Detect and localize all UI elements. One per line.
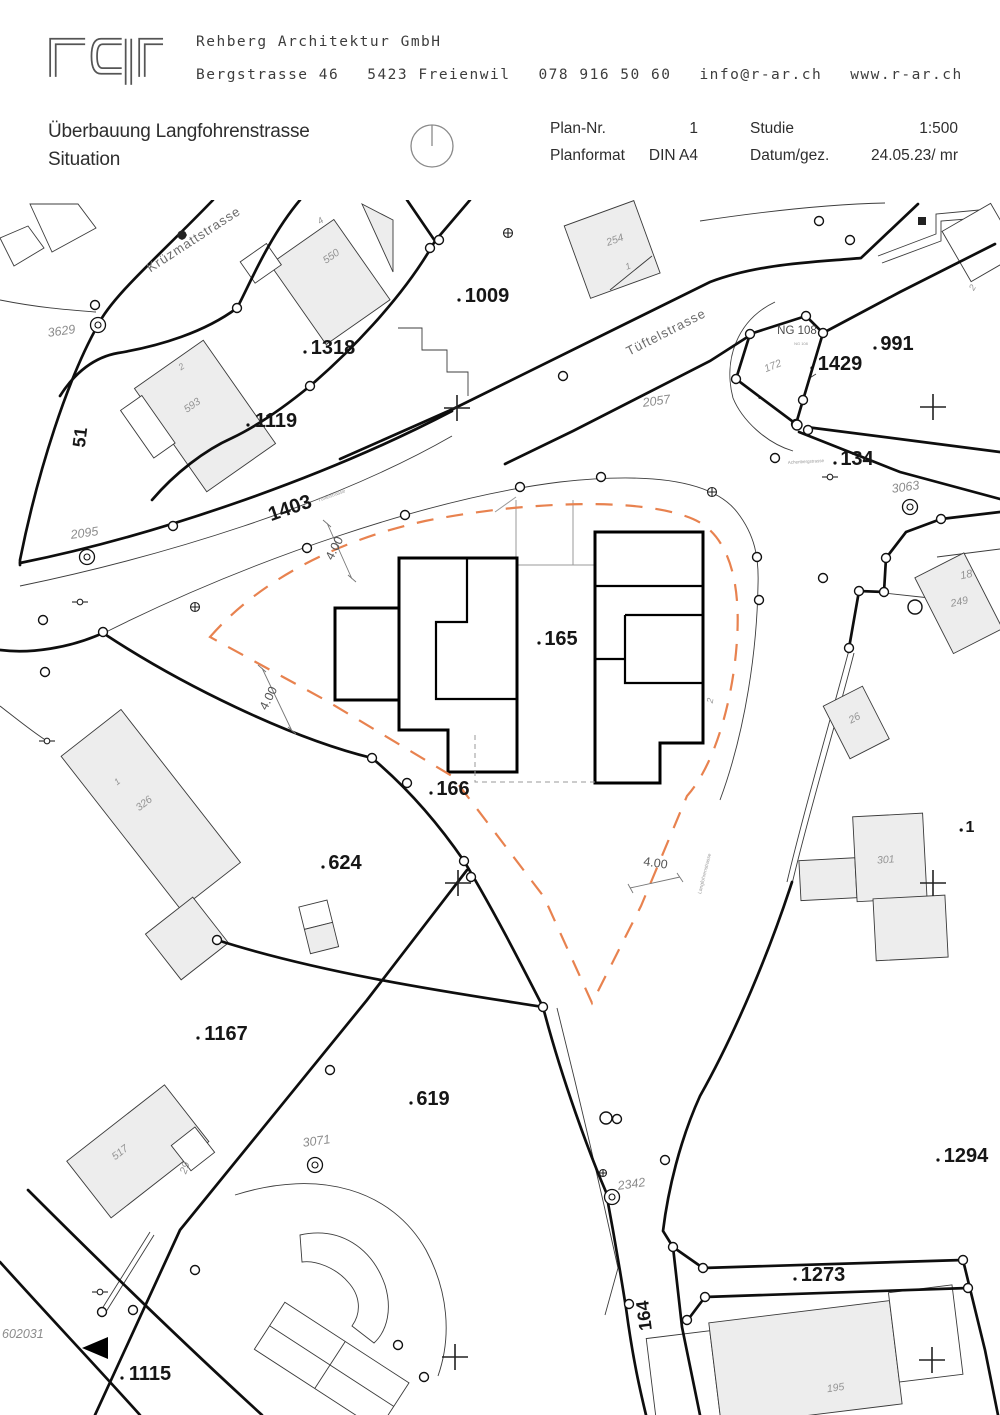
map-label-2057: 2057 xyxy=(641,392,673,410)
map-label-1115: 1115 xyxy=(129,1363,171,1385)
map-label-t-ftelstrasse: Tüftelstrasse xyxy=(317,488,346,504)
map-label-2: 2 xyxy=(705,697,716,705)
parcel-centroid-dot xyxy=(321,865,324,868)
building-tip xyxy=(362,204,393,272)
map-label-602031: 602031 xyxy=(2,1327,44,1341)
field-datum-label: Datum/gez. xyxy=(750,147,829,174)
map-label-301: 301 xyxy=(877,853,895,866)
fixed-point xyxy=(605,1190,620,1205)
map-label-1429: 1429 xyxy=(818,353,863,375)
building-301 xyxy=(797,812,948,964)
company-phone: 078 916 50 60 xyxy=(538,67,671,83)
parcel-centroid-dot xyxy=(537,641,540,644)
company-city: 5423 Freienwil xyxy=(367,67,510,83)
existing-buildings xyxy=(27,201,1000,1415)
new-buildings xyxy=(335,532,703,783)
sheet-name: Situation xyxy=(48,146,310,174)
project-name: Überbauung Langfohrenstrasse xyxy=(48,118,310,146)
map-label-2342: 2342 xyxy=(616,1175,647,1193)
map-label-134: 134 xyxy=(840,448,874,470)
map-label-3063: 3063 xyxy=(891,478,921,496)
fixed-point xyxy=(80,550,95,565)
company-email: info@r-ar.ch xyxy=(699,67,822,83)
company-name: Rehberg Architektur GmbH xyxy=(196,34,442,50)
map-label-1009: 1009 xyxy=(465,285,510,307)
field-planformat-label: Planformat xyxy=(550,147,625,174)
parcel-centroid-dot xyxy=(810,366,813,369)
parcel-centroid-dot xyxy=(196,1036,199,1039)
site-plan-map: KrüzmattstrasseTüftelstrasseTüftelstrass… xyxy=(0,0,1000,1415)
map-label-3629: 3629 xyxy=(47,322,77,340)
projection-lines xyxy=(495,497,595,565)
fixed-point xyxy=(903,500,918,515)
building-326 xyxy=(27,710,275,980)
map-label-166: 166 xyxy=(436,778,469,800)
field-planformat-value: DIN A4 xyxy=(649,147,698,174)
building-593 xyxy=(115,340,276,505)
company-logo xyxy=(40,26,170,88)
map-label-1: 1 xyxy=(966,819,975,836)
building-517 xyxy=(67,1085,216,1228)
map-label-4-00: 4.00 xyxy=(643,854,669,871)
building-bottom-left xyxy=(254,1302,409,1415)
company-street: Bergstrasse 46 xyxy=(196,67,339,83)
parcel-centroid-dot xyxy=(960,828,963,831)
map-label-51: 51 xyxy=(69,426,91,448)
plan-header: rar Rehberg Architektur GmbH Bergstrasse… xyxy=(0,0,1000,200)
map-label-2095: 2095 xyxy=(69,524,100,542)
map-label-165: 165 xyxy=(544,628,577,650)
title-block: Überbauung Langfohrenstrasse Situation xyxy=(48,118,310,174)
building-top-right xyxy=(942,203,1000,281)
company-website: www.r-ar.ch xyxy=(850,67,963,83)
parcel-centroid-dot xyxy=(409,1101,412,1104)
plan-fields-right: Studie 1:500 Datum/gez. 24.05.23/ mr xyxy=(750,120,958,174)
map-label-3071: 3071 xyxy=(302,1132,331,1150)
building-195 xyxy=(644,1285,965,1415)
fixed-point xyxy=(91,318,106,333)
map-label-1403: 1403 xyxy=(265,491,314,526)
map-label-1294: 1294 xyxy=(944,1145,989,1167)
building-254 xyxy=(564,201,660,299)
parcel-centroid-dot xyxy=(429,791,432,794)
shed-624 xyxy=(299,900,339,954)
parcel-centroid-dot xyxy=(457,298,460,301)
company-contact: Bergstrasse 46 5423 Freienwil 078 916 50… xyxy=(196,67,963,83)
map-label-624: 624 xyxy=(328,852,362,874)
field-studie-value: 1:500 xyxy=(919,120,958,147)
field-datum-value: 24.05.23/ mr xyxy=(871,147,958,174)
map-label-1167: 1167 xyxy=(204,1023,247,1045)
map-label-2: 2 xyxy=(966,283,978,293)
field-plan-nr-value: 1 xyxy=(689,120,698,147)
map-label-1273: 1273 xyxy=(801,1264,846,1286)
map-label-achenbergstrasse: Achenbergstrasse xyxy=(788,458,825,465)
parcel-centroid-dot xyxy=(303,350,306,353)
map-label-1119: 1119 xyxy=(255,410,297,432)
wall-post xyxy=(918,217,926,225)
new-building-west xyxy=(399,558,517,772)
field-studie-label: Studie xyxy=(750,120,794,147)
fixed-point xyxy=(308,1158,323,1173)
parcel-centroid-dot xyxy=(793,1277,796,1280)
map-label-619: 619 xyxy=(416,1088,449,1110)
map-label-4: 4 xyxy=(315,215,325,226)
map-label-1318: 1318 xyxy=(311,337,356,359)
map-label-t-ftelstrasse: Tüftelstrasse xyxy=(624,305,709,358)
new-building-east xyxy=(595,532,703,783)
plan-fields-left: Plan-Nr. 1 Planformat DIN A4 xyxy=(550,120,698,174)
parcel-centroid-dot xyxy=(833,461,836,464)
field-plan-nr-label: Plan-Nr. xyxy=(550,120,606,147)
map-label-kr-zmattstrasse: Krüzmattstrasse xyxy=(144,203,244,275)
parcel-centroid-dot xyxy=(873,346,876,349)
map-label-langfohrenstrasse: Langfohrenstrasse xyxy=(697,853,713,895)
map-label-991: 991 xyxy=(880,333,913,355)
map-label-ng-108: NG 108 xyxy=(777,325,817,337)
parcel-centroid-dot xyxy=(936,1158,939,1161)
map-label-195: 195 xyxy=(826,1381,845,1395)
parcel-centroid-dot xyxy=(120,1376,123,1379)
north-arrow-icon xyxy=(408,122,456,170)
parcel-centroid-dot xyxy=(246,423,249,426)
building-550 xyxy=(240,204,390,358)
new-building-west-annex xyxy=(335,608,399,700)
map-label-ng-108: NG 108 xyxy=(794,341,809,346)
map-label-164: 164 xyxy=(632,1300,656,1332)
